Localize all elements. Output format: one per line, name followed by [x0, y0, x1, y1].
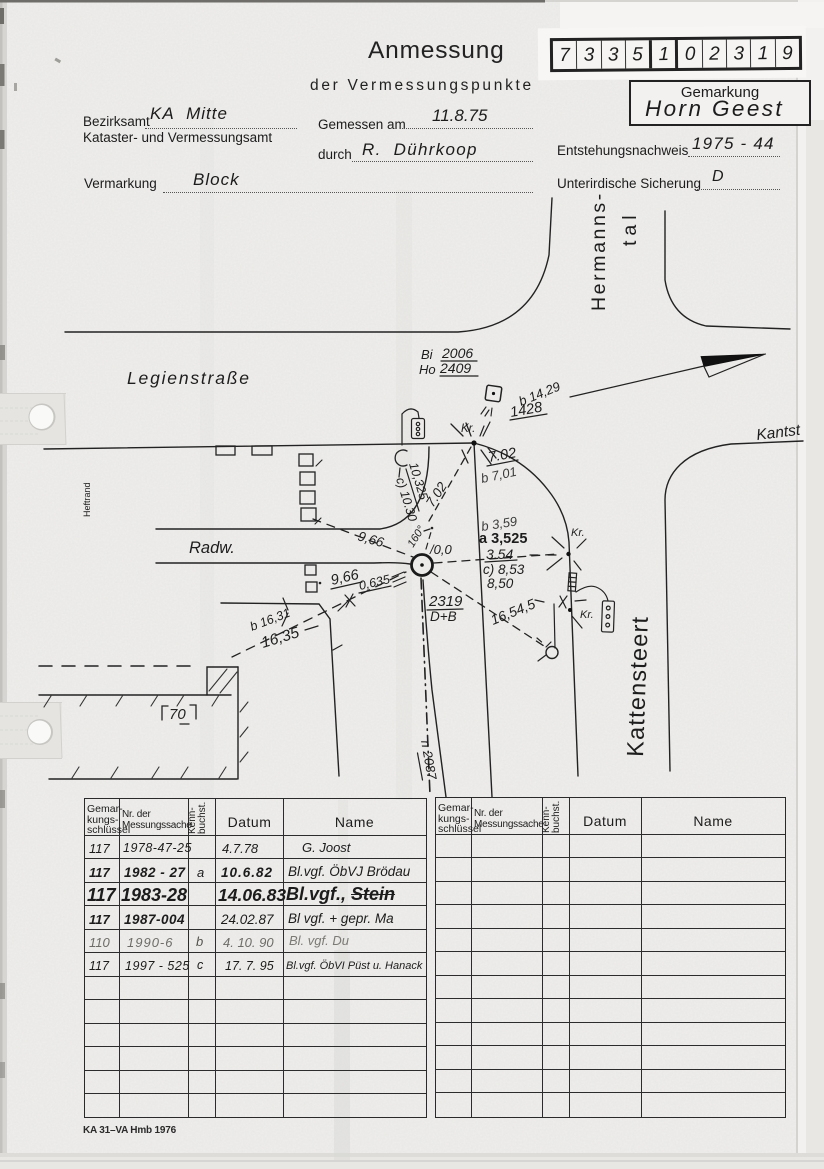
svg-text:Legienstraße: Legienstraße [127, 368, 251, 388]
svg-text:a 3,525: a 3,525 [479, 531, 527, 547]
svg-text:2409: 2409 [439, 360, 471, 376]
svg-text:3.54: 3.54 [486, 546, 513, 562]
svg-text:9,66: 9,66 [356, 528, 386, 550]
svg-text:Kr.: Kr. [580, 609, 594, 621]
svg-text:b 7,01: b 7,01 [480, 464, 518, 486]
svg-text:c) 8,53: c) 8,53 [483, 562, 525, 577]
svg-text:160°: 160° [405, 523, 428, 549]
svg-text:D+B: D+B [430, 609, 457, 624]
svg-text:Hermanns-: Hermanns- [588, 191, 610, 311]
svg-text:/0,0: /0,0 [429, 542, 452, 557]
svg-text:Ho: Ho [419, 362, 436, 377]
svg-text:2006: 2006 [441, 345, 473, 361]
svg-text:tal: tal [619, 210, 641, 246]
svg-text:Kr.: Kr. [571, 527, 585, 539]
svg-text:2319: 2319 [428, 593, 463, 610]
svg-text:Heftrand: Heftrand [82, 482, 92, 517]
svg-text:Radw.: Radw. [189, 539, 235, 557]
svg-text:70: 70 [169, 706, 186, 723]
svg-text:16,54,5: 16,54,5 [488, 595, 538, 627]
svg-text:Kattensteert: Kattensteert [622, 615, 653, 757]
svg-text:Kantst: Kantst [755, 422, 801, 444]
svg-text:Kr.: Kr. [461, 423, 475, 435]
svg-text:Bi: Bi [421, 347, 434, 362]
svg-text:8,50: 8,50 [487, 576, 514, 591]
